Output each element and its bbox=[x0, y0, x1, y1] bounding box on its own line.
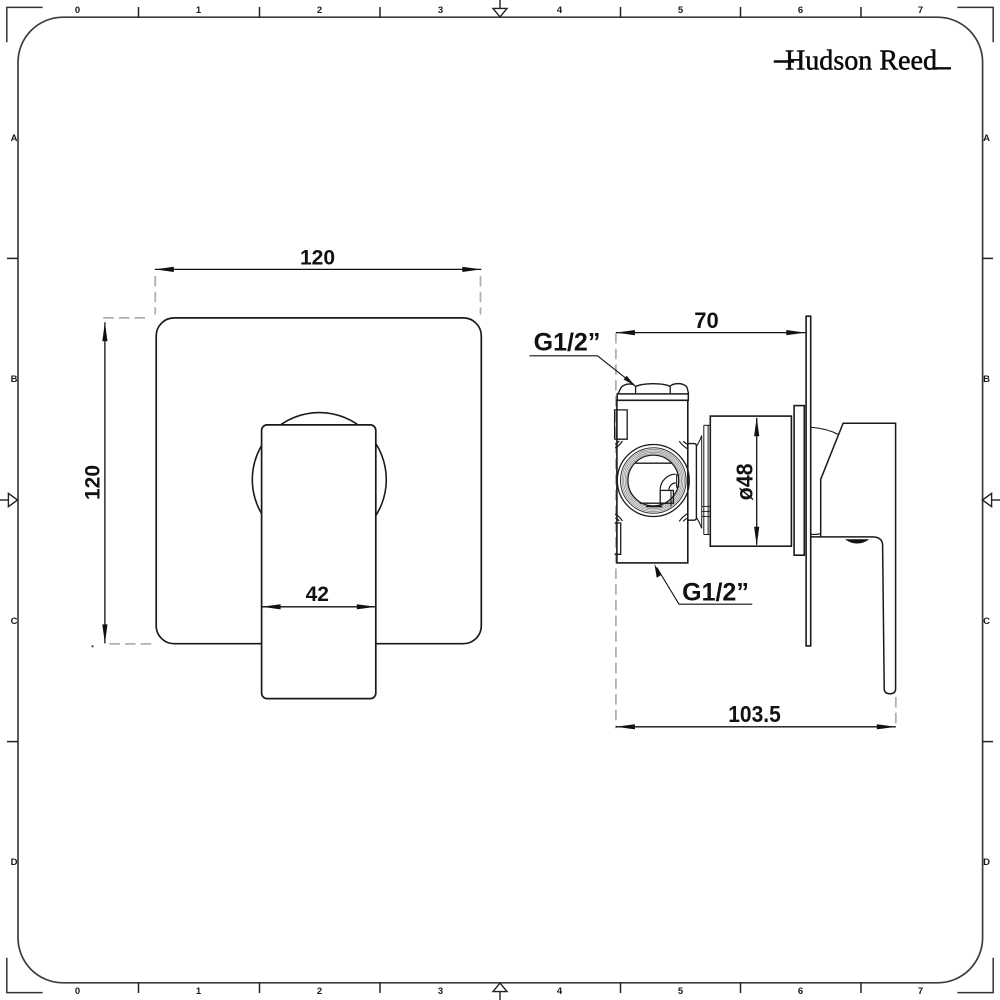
svg-text:1: 1 bbox=[196, 986, 202, 997]
svg-text:120: 120 bbox=[300, 247, 335, 270]
svg-text:2: 2 bbox=[317, 986, 322, 997]
svg-text:G1/2”: G1/2” bbox=[534, 329, 601, 357]
svg-text:G1/2”: G1/2” bbox=[682, 578, 749, 606]
svg-text:7: 7 bbox=[918, 5, 923, 16]
svg-text:4: 4 bbox=[557, 5, 563, 16]
svg-text:6: 6 bbox=[798, 986, 803, 997]
svg-text:B: B bbox=[983, 374, 990, 385]
svg-text:C: C bbox=[11, 616, 18, 627]
svg-text:4: 4 bbox=[557, 986, 563, 997]
svg-text:ø48: ø48 bbox=[732, 463, 758, 500]
svg-text:1: 1 bbox=[196, 5, 202, 16]
svg-text:3: 3 bbox=[438, 5, 443, 16]
svg-text:B: B bbox=[11, 374, 18, 385]
svg-text:A: A bbox=[983, 133, 990, 144]
svg-text:A: A bbox=[11, 133, 18, 144]
svg-text:42: 42 bbox=[306, 583, 329, 606]
svg-text:C: C bbox=[983, 616, 990, 627]
svg-text:Hudson Reed: Hudson Reed bbox=[785, 46, 937, 77]
svg-text:5: 5 bbox=[678, 5, 684, 16]
svg-text:D: D bbox=[983, 857, 990, 868]
svg-text:5: 5 bbox=[678, 986, 684, 997]
svg-text:3: 3 bbox=[438, 986, 443, 997]
svg-text:6: 6 bbox=[798, 5, 803, 16]
svg-text:7: 7 bbox=[918, 986, 923, 997]
svg-text:0: 0 bbox=[75, 986, 80, 997]
svg-text:0: 0 bbox=[75, 5, 80, 16]
svg-text:2: 2 bbox=[317, 5, 322, 16]
svg-text:103.5: 103.5 bbox=[728, 701, 781, 727]
svg-text:70: 70 bbox=[694, 308, 718, 333]
svg-text:D: D bbox=[11, 857, 18, 868]
svg-text:120: 120 bbox=[82, 465, 105, 500]
